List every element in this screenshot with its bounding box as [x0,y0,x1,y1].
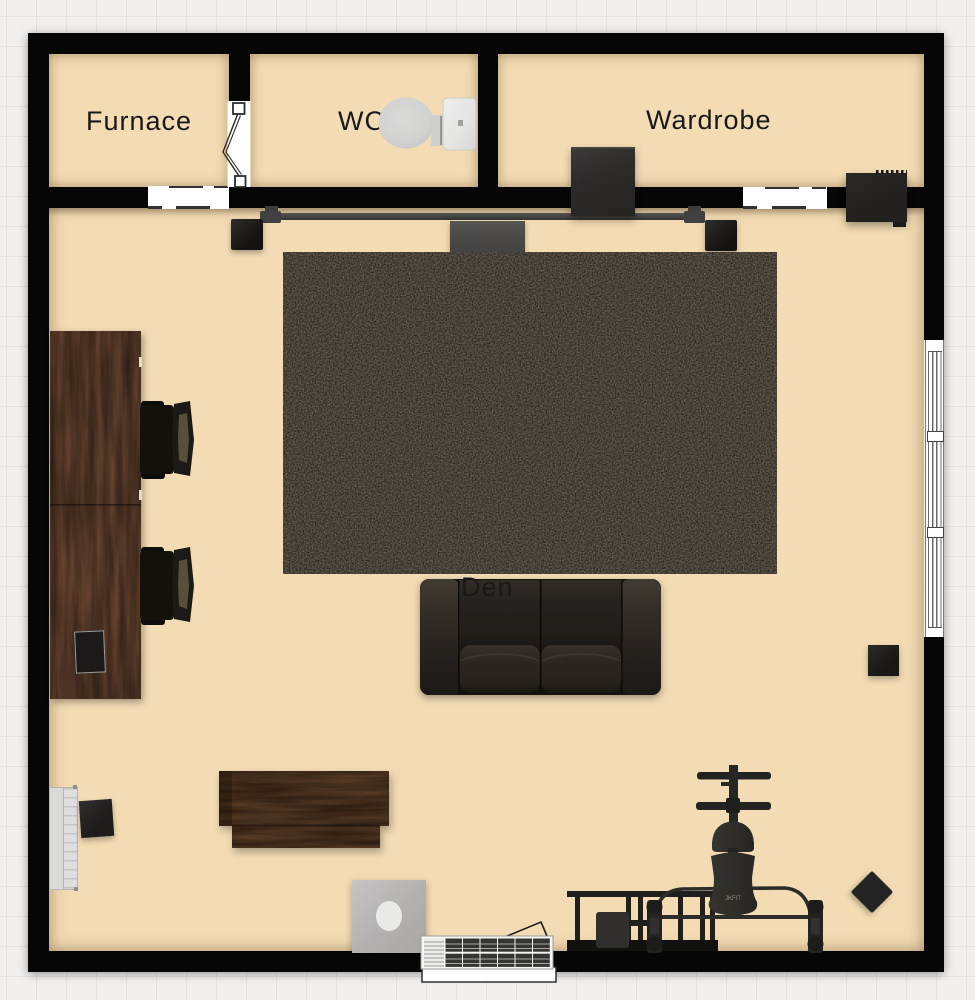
svg-text:JKFIT: JKFIT [725,896,741,902]
